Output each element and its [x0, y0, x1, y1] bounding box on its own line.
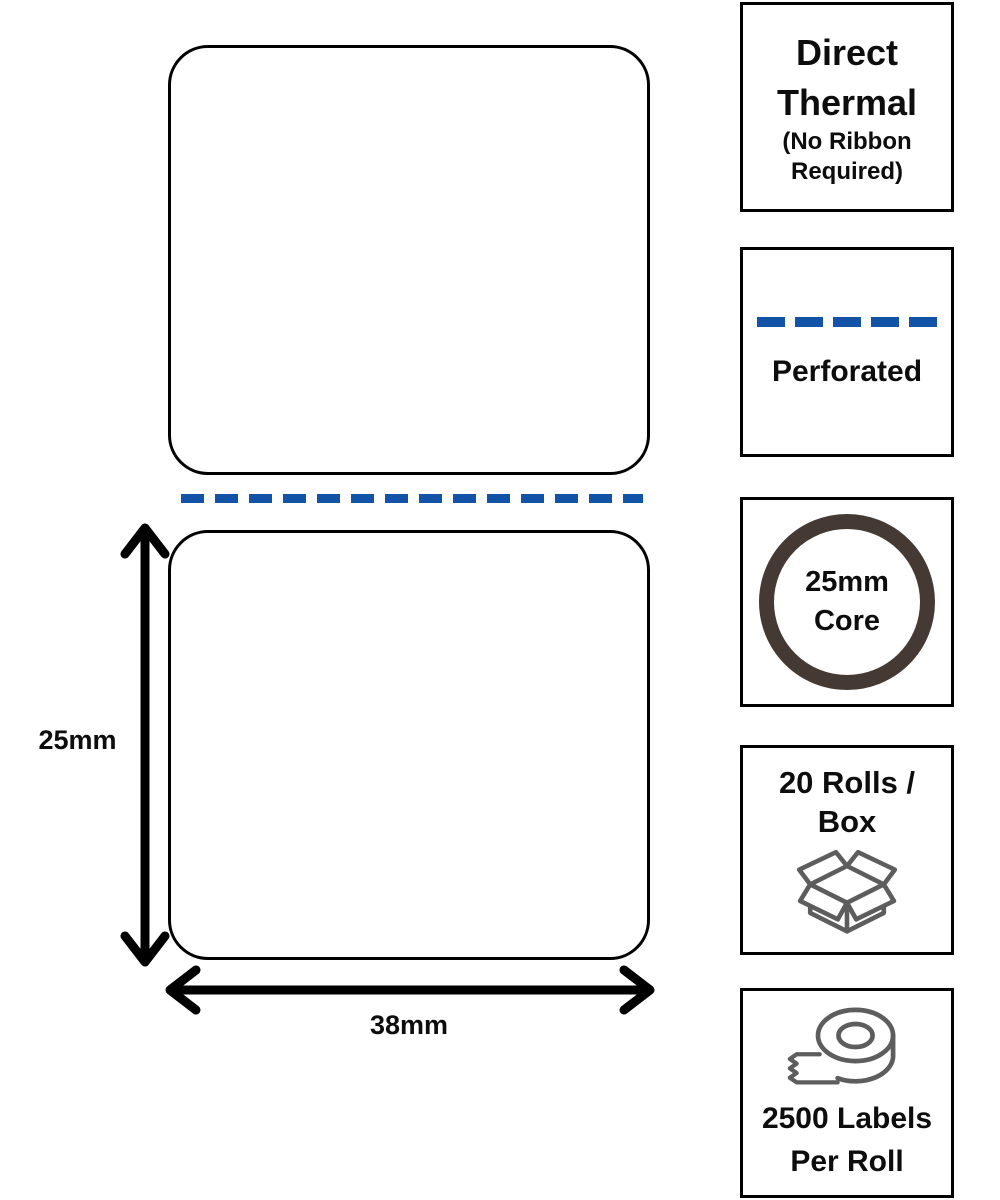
circle-ring-icon: 25mm Core: [759, 514, 935, 690]
width-dimension-label: 38mm: [168, 1010, 650, 1041]
label-outline-top: [168, 45, 650, 475]
direct-thermal-sub-line2: Required): [791, 157, 903, 186]
direct-thermal-title-line1: Direct: [796, 28, 898, 78]
width-dimension-arrow: [158, 963, 662, 1017]
label-outline-bottom: [168, 530, 650, 960]
feature-box-core: 25mm Core: [740, 497, 954, 707]
dashed-line-icon: [757, 317, 937, 327]
label-product-infographic: 25mm 38mm Direct Thermal (No Ribbon Requ…: [0, 0, 1000, 1200]
feature-box-rolls-per-box: 20 Rolls / Box: [740, 745, 954, 955]
perforated-label: Perforated: [772, 349, 922, 394]
labels-label-line1: 2500 Labels: [762, 1097, 932, 1141]
core-label-line1: 25mm: [805, 563, 889, 602]
direct-thermal-sub-line1: (No Ribbon: [782, 127, 911, 156]
rolls-label-line2: Box: [818, 800, 877, 843]
labels-label-line2: Per Roll: [790, 1140, 903, 1184]
rolls-label-line1: 20 Rolls /: [779, 761, 915, 804]
core-label-line2: Core: [814, 602, 880, 641]
tape-roll-icon: [783, 1003, 911, 1097]
direct-thermal-title-line2: Thermal: [777, 78, 917, 128]
perforation-dashed-line: [181, 494, 643, 503]
feature-box-labels-per-roll: 2500 Labels Per Roll: [740, 988, 954, 1198]
feature-box-direct-thermal: Direct Thermal (No Ribbon Required): [740, 2, 954, 212]
feature-box-perforated: Perforated: [740, 247, 954, 457]
height-dimension-label: 25mm: [25, 725, 130, 756]
open-box-icon: [788, 843, 906, 935]
